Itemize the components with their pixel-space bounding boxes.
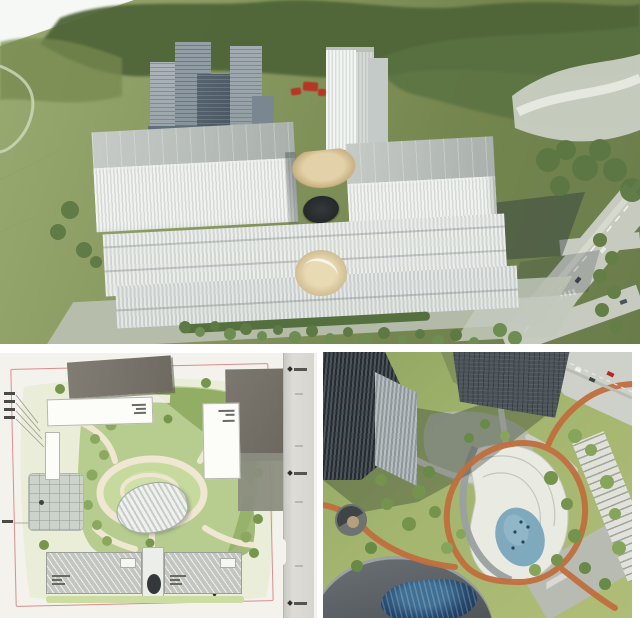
plan-building-east [202,403,240,480]
context-building [238,453,284,511]
illegible-label [170,579,180,581]
illegible-label [294,368,307,371]
illegible-label [4,416,15,419]
illegible-label [132,404,146,406]
plan-building-north [47,397,154,427]
road-marker [288,601,308,607]
sports-court [28,473,84,531]
illegible-label [294,602,307,605]
red-car [606,371,614,378]
illegible-label [136,408,146,410]
illegible-label [170,583,182,585]
illegible-label [4,408,15,411]
illegible-label [218,410,234,412]
site-plan-panel [0,353,317,618]
illegible-label [4,400,15,403]
plan-building-west [45,432,60,480]
illegible-label [52,583,65,585]
rendering-collage [0,0,640,618]
illegible-label [4,392,15,395]
road-strip [283,353,314,618]
road-marker [288,471,308,477]
illegible-label [170,575,186,577]
road-marker [288,367,308,373]
courtyard-rendering-panel [323,352,632,618]
illegible-label [226,414,235,416]
plan-building-center-south [142,547,164,599]
illegible-label [134,412,146,414]
planting-strip [46,596,244,603]
illegible-label [294,472,307,475]
illegible-label [223,420,235,422]
foreground-trees-art [0,0,640,344]
illegible-label [2,520,13,523]
context-building [67,355,173,398]
illegible-label [52,575,70,577]
plan-building-south-west [46,552,142,594]
plan-building-south-east [164,552,242,594]
roof-inset [120,558,136,568]
hero-rendering-panel [0,0,640,344]
roof-inset [220,558,236,568]
illegible-label [52,579,62,581]
